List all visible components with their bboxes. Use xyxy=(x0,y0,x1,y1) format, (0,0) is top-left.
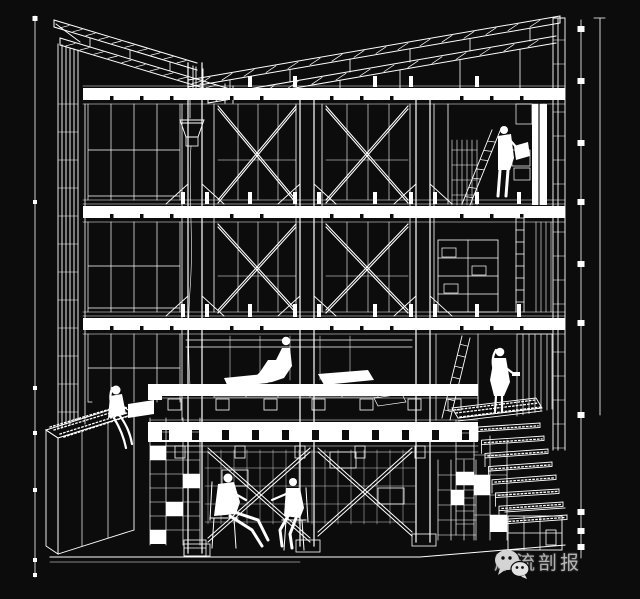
section-drawing-canvas xyxy=(0,0,640,599)
watermark: 犀流剖报 xyxy=(494,548,582,575)
planter-box xyxy=(46,406,134,554)
left-wall xyxy=(56,24,80,428)
shelf-rack xyxy=(438,210,551,312)
right-dimension-line xyxy=(578,18,606,558)
left-dimension-line xyxy=(33,16,38,577)
right-wall xyxy=(553,18,565,450)
floor-slabs xyxy=(83,76,565,334)
wechat-icon xyxy=(494,548,530,580)
architectural-section-drawing: 犀流剖报 xyxy=(0,0,640,599)
figure-upper-floor-reader xyxy=(498,126,530,196)
figure-basement-guest xyxy=(272,478,308,550)
rain-chain-funnel xyxy=(180,100,204,386)
exterior-stair xyxy=(452,398,567,550)
slat-screen xyxy=(517,334,552,416)
main-floor-deck xyxy=(128,384,478,458)
figure-platform-sitter xyxy=(252,337,292,384)
